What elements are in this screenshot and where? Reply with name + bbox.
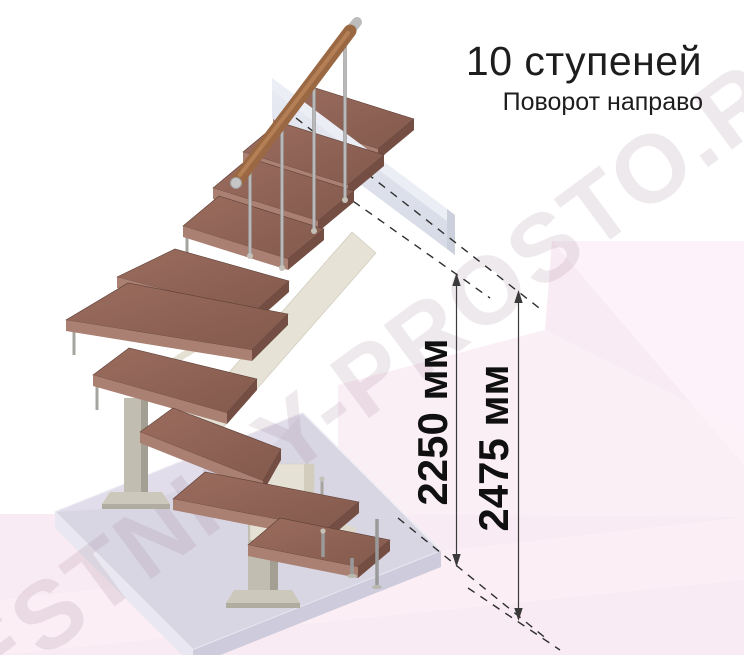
wall-panel-end	[447, 209, 455, 255]
staircase-diagram: LESTNICY-PROSTO.RU	[0, 0, 744, 655]
base-plate	[102, 492, 170, 504]
arrow-down-icon	[452, 554, 460, 567]
handrail-end-cap	[231, 178, 242, 189]
dimension-label-2475: 2475 мм	[470, 338, 518, 558]
treads	[66, 122, 390, 578]
extension-line-ground-level	[468, 588, 560, 650]
dimension-label-2250: 2250 мм	[409, 312, 457, 532]
baluster-foot	[347, 574, 357, 578]
baluster-foot	[372, 585, 382, 589]
arrow-up-icon	[514, 290, 522, 303]
support-column-1	[102, 398, 170, 509]
page-title: 10 ступеней	[466, 38, 702, 85]
base-plate	[226, 590, 300, 603]
page-subtitle: Поворот направо	[503, 88, 703, 117]
